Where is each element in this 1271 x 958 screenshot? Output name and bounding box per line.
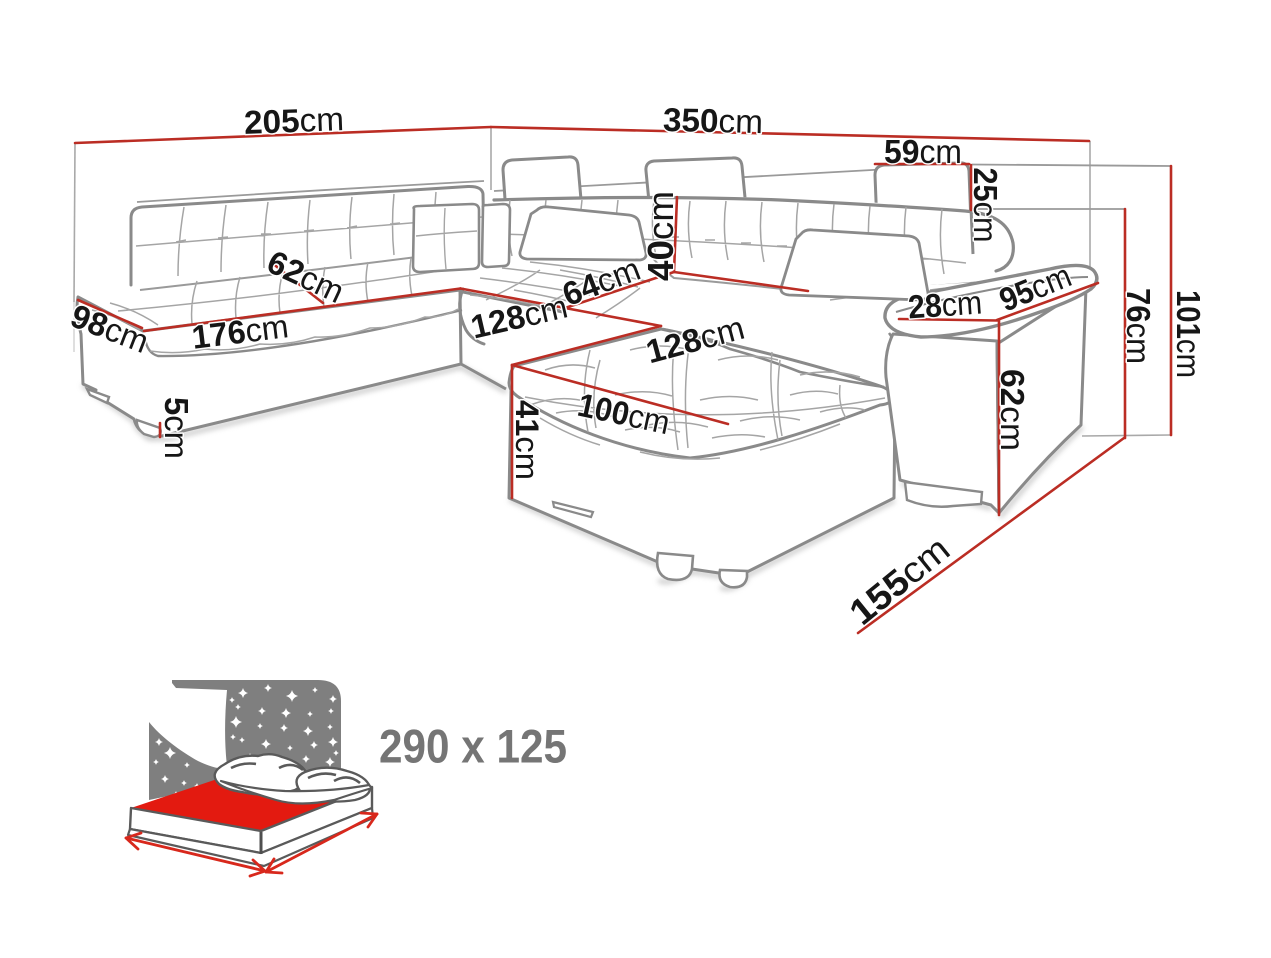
svg-text:28cm: 28cm bbox=[907, 283, 983, 325]
svg-text:5cm: 5cm bbox=[159, 397, 196, 459]
svg-text:62cm: 62cm bbox=[995, 369, 1032, 451]
svg-text:41cm: 41cm bbox=[509, 400, 545, 480]
svg-text:76cm: 76cm bbox=[1121, 288, 1158, 364]
svg-text:101cm: 101cm bbox=[1171, 290, 1208, 378]
svg-text:59cm: 59cm bbox=[884, 133, 962, 170]
svg-text:205cm: 205cm bbox=[243, 100, 344, 141]
svg-text:40cm: 40cm bbox=[640, 191, 681, 281]
svg-text:25cm: 25cm bbox=[968, 168, 1005, 243]
svg-text:290 x 125: 290 x 125 bbox=[379, 720, 567, 773]
svg-text:350cm: 350cm bbox=[663, 100, 764, 139]
